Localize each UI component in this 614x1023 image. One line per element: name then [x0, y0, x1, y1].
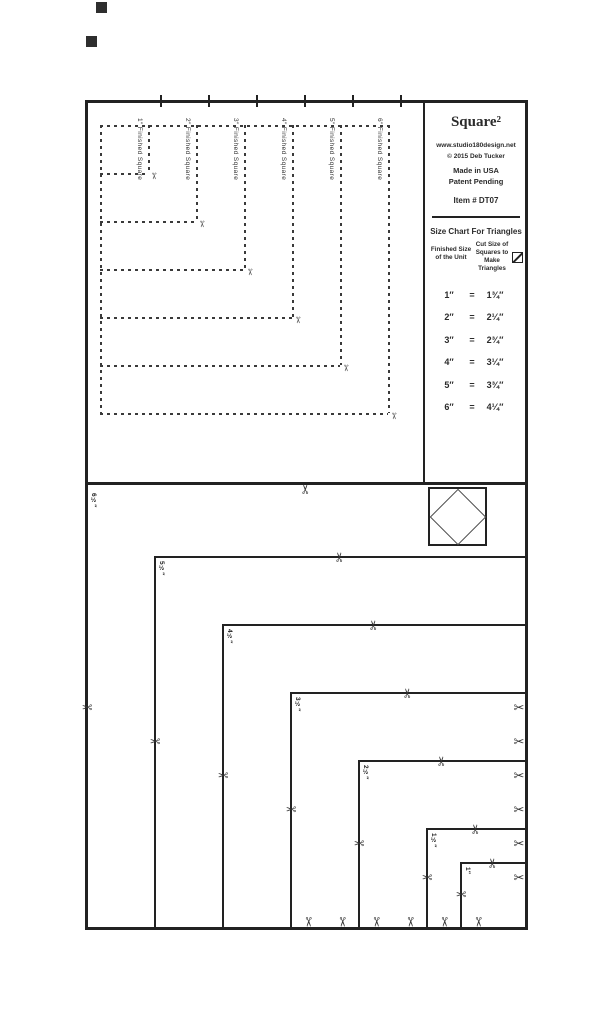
- cut-square-size-label: 5½″: [158, 561, 165, 576]
- dotted-square-right-edge: [148, 125, 150, 173]
- scissors-icon: ✂: [368, 618, 382, 632]
- chart-cut-size: 4¼″: [478, 402, 512, 412]
- chart-cut-size: 3¼″: [478, 357, 512, 367]
- item-number: Item # DT07: [426, 196, 526, 205]
- inch-tick: [256, 95, 258, 107]
- finished-square-label: 5″ Finished Square: [328, 118, 335, 180]
- website-text: www.studio180design.net: [426, 142, 526, 149]
- chart-finished-size: 5″: [432, 380, 466, 390]
- scissors-icon: ✂: [512, 736, 526, 750]
- scissors-icon: ✂: [512, 804, 526, 818]
- cut-square-size-label: 6½″: [90, 493, 97, 508]
- chart-finished-size: 4″: [432, 357, 466, 367]
- chart-cut-size: 2¾″: [478, 335, 512, 345]
- cut-square-size-label: 2½″: [362, 765, 369, 780]
- scissors-icon: ✂: [512, 770, 526, 784]
- dotted-square-bottom-edge: [100, 317, 292, 319]
- inch-tick: [352, 95, 354, 107]
- scissors-icon: ✂: [191, 217, 205, 231]
- scissors-icon: ✂: [436, 915, 450, 929]
- page: 1″ Finished Square✂2″ Finished Square✂3″…: [0, 0, 614, 1023]
- scissors-icon: ✂: [239, 265, 253, 279]
- scissors-icon: ✂: [300, 915, 314, 929]
- scissors-icon: ✂: [454, 889, 468, 903]
- cut-square-size-label: 1″: [464, 867, 471, 874]
- chart-equals: =: [466, 335, 478, 345]
- scissors-icon: ✂: [334, 915, 348, 929]
- chart-equals: =: [466, 290, 478, 300]
- cut-square-size-label: 4½″: [226, 629, 233, 644]
- chart-cut-size: 2¼″: [478, 312, 512, 322]
- chart-finished-size: 2″: [432, 312, 466, 322]
- diamond-icon: [429, 488, 486, 545]
- panel-separator-line: [423, 100, 425, 483]
- tool-title: Square²: [426, 114, 526, 131]
- cut-square-size-label: 3½″: [294, 697, 301, 712]
- scissors-icon: ✂: [470, 822, 484, 836]
- chart-title: Size Chart For Triangles: [426, 227, 526, 236]
- copyright-text: © 2015 Deb Tucker: [426, 153, 526, 160]
- panel-divider: [432, 216, 520, 218]
- dotted-square-right-edge: [292, 125, 294, 317]
- dotted-square-bottom-edge: [100, 221, 196, 223]
- dotted-square-bottom-edge: [100, 365, 340, 367]
- scissors-icon: ✂: [300, 482, 314, 496]
- finished-square-label: 1″ Finished Square: [136, 118, 143, 176]
- chart-equals: =: [466, 402, 478, 412]
- dotted-square-right-edge: [388, 125, 390, 413]
- scissors-icon: ✂: [512, 838, 526, 852]
- patent-text: Patent Pending: [426, 177, 526, 186]
- scan-mark: [96, 2, 107, 13]
- scissors-icon: ✂: [80, 702, 94, 716]
- chart-finished-size: 1″: [432, 290, 466, 300]
- scissors-icon: ✂: [402, 915, 416, 929]
- dotted-square-bottom-edge: [100, 413, 388, 415]
- scissors-icon: ✂: [335, 361, 349, 375]
- finished-square-label: 2″ Finished Square: [184, 118, 191, 180]
- cut-square-size-label: 1½″: [430, 833, 437, 848]
- finished-square-label: 4″ Finished Square: [280, 118, 287, 180]
- square-in-a-square-logo: [428, 487, 487, 546]
- inch-tick: [304, 95, 306, 107]
- half-square-triangle-icon: [512, 252, 523, 263]
- dotted-square-right-edge: [340, 125, 342, 365]
- scissors-icon: ✂: [352, 838, 366, 852]
- chart-finished-size: 6″: [432, 402, 466, 412]
- scissors-icon: ✂: [287, 313, 301, 327]
- finished-square-label: 6″ Finished Square: [376, 118, 383, 180]
- scissors-icon: ✂: [334, 550, 348, 564]
- scissors-icon: ✂: [470, 915, 484, 929]
- inch-tick: [160, 95, 162, 107]
- made-in-text: Made in USA: [426, 166, 526, 175]
- chart-col1-header: Finished Size of the Unit: [428, 246, 474, 262]
- finished-square-label: 3″ Finished Square: [232, 118, 239, 180]
- scissors-icon: ✂: [487, 856, 501, 870]
- chart-cut-size: 3¾″: [478, 380, 512, 390]
- scissors-icon: ✂: [420, 872, 434, 886]
- chart-equals: =: [466, 312, 478, 322]
- chart-cut-size: 1¾″: [478, 290, 512, 300]
- scissors-icon: ✂: [512, 872, 526, 886]
- dotted-square-right-edge: [244, 125, 246, 269]
- chart-col2-header: Cut Size of Squares to Make Triangles: [470, 241, 514, 272]
- scissors-icon: ✂: [512, 702, 526, 716]
- inch-tick: [400, 95, 402, 107]
- chart-finished-size: 3″: [432, 335, 466, 345]
- chart-equals: =: [466, 380, 478, 390]
- dotted-square-bottom-edge: [100, 269, 244, 271]
- chart-equals: =: [466, 357, 478, 367]
- scissors-icon: ✂: [383, 409, 397, 423]
- scissors-icon: ✂: [216, 770, 230, 784]
- scissors-icon: ✂: [368, 915, 382, 929]
- scissors-icon: ✂: [148, 736, 162, 750]
- scan-mark: [86, 36, 97, 47]
- scissors-icon: ✂: [143, 169, 157, 183]
- scissors-icon: ✂: [436, 754, 450, 768]
- dotted-square-right-edge: [196, 125, 198, 221]
- scissors-icon: ✂: [402, 686, 416, 700]
- inch-tick: [208, 95, 210, 107]
- scissors-icon: ✂: [284, 804, 298, 818]
